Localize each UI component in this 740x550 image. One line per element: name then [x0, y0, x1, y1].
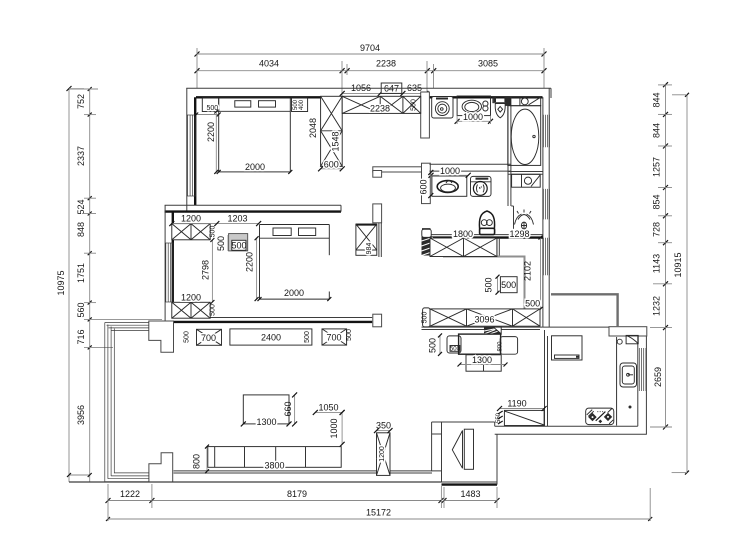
svg-text:2200: 2200 [245, 252, 255, 272]
svg-text:500: 500 [422, 312, 429, 324]
svg-text:1800: 1800 [453, 229, 473, 239]
svg-text:752: 752 [76, 94, 86, 109]
svg-text:984: 984 [366, 243, 373, 255]
svg-text:800: 800 [192, 454, 202, 469]
svg-text:500: 500 [210, 226, 217, 238]
svg-text:1000: 1000 [329, 418, 339, 438]
svg-text:2000: 2000 [245, 162, 265, 172]
svg-text:9704: 9704 [360, 43, 380, 53]
svg-text:854: 854 [652, 194, 662, 209]
svg-text:1200: 1200 [379, 446, 386, 462]
svg-text:1200: 1200 [181, 293, 201, 303]
svg-text:600: 600 [324, 160, 339, 170]
svg-text:1298: 1298 [509, 229, 529, 239]
svg-text:2238: 2238 [370, 104, 390, 114]
svg-text:1200: 1200 [181, 214, 201, 224]
svg-text:15172: 15172 [366, 508, 391, 518]
svg-text:2000: 2000 [284, 288, 304, 298]
svg-text:3956: 3956 [76, 405, 86, 425]
svg-text:400: 400 [299, 99, 305, 110]
svg-text:10915: 10915 [673, 252, 683, 277]
svg-text:1143: 1143 [652, 254, 662, 273]
svg-text:2337: 2337 [76, 146, 86, 166]
svg-text:500: 500 [216, 236, 226, 251]
svg-text:8179: 8179 [287, 489, 307, 499]
svg-text:1050: 1050 [318, 403, 338, 413]
svg-text:500: 500 [210, 304, 217, 316]
svg-text:500: 500 [484, 277, 494, 292]
svg-text:1300: 1300 [472, 355, 492, 365]
svg-text:800: 800 [498, 341, 504, 352]
svg-text:1000: 1000 [440, 166, 460, 176]
svg-text:524: 524 [76, 199, 86, 214]
svg-text:500: 500 [411, 99, 418, 111]
svg-text:2102: 2102 [523, 261, 533, 281]
svg-text:1483: 1483 [460, 489, 480, 499]
svg-text:500: 500 [525, 298, 540, 308]
svg-text:1222: 1222 [120, 489, 140, 499]
svg-text:2400: 2400 [261, 333, 281, 343]
svg-text:1203: 1203 [227, 214, 247, 224]
svg-text:844: 844 [652, 92, 662, 107]
svg-text:660: 660 [283, 401, 293, 416]
svg-text:1000: 1000 [463, 112, 483, 122]
svg-text:844: 844 [652, 123, 662, 138]
svg-text:3800: 3800 [264, 461, 284, 471]
svg-text:848: 848 [76, 222, 86, 237]
svg-text:1190: 1190 [507, 398, 526, 408]
svg-text:500: 500 [304, 331, 311, 343]
svg-text:2238: 2238 [376, 59, 396, 69]
svg-text:700: 700 [201, 333, 216, 343]
svg-text:1257: 1257 [652, 157, 662, 177]
svg-text:500: 500 [184, 331, 191, 343]
svg-text:2200: 2200 [206, 122, 216, 142]
svg-text:2798: 2798 [201, 260, 211, 280]
svg-text:2659: 2659 [653, 367, 663, 387]
svg-text:700: 700 [326, 333, 341, 343]
svg-text:1300: 1300 [256, 417, 276, 427]
svg-text:350: 350 [376, 421, 391, 431]
svg-text:716: 716 [76, 329, 86, 344]
svg-text:1751: 1751 [76, 263, 86, 283]
svg-text:2048: 2048 [308, 118, 318, 138]
svg-text:3085: 3085 [478, 59, 498, 69]
svg-text:500: 500 [501, 280, 516, 290]
svg-text:10975: 10975 [56, 270, 66, 295]
svg-text:600: 600 [419, 179, 429, 194]
svg-text:550: 550 [496, 412, 502, 423]
svg-text:4034: 4034 [259, 59, 279, 69]
svg-text:500: 500 [346, 329, 353, 341]
svg-text:560: 560 [76, 302, 86, 317]
svg-text:3096: 3096 [474, 315, 494, 325]
svg-text:1548: 1548 [331, 131, 341, 151]
svg-text:500: 500 [231, 241, 246, 251]
svg-text:728: 728 [652, 222, 662, 237]
svg-text:500: 500 [428, 338, 438, 353]
svg-text:1232: 1232 [652, 296, 662, 316]
